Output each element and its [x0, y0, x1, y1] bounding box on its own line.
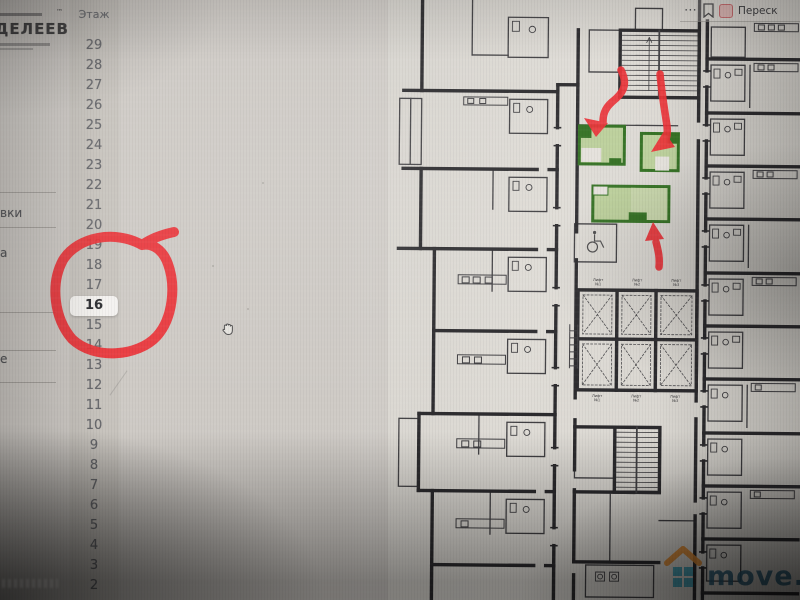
lift-label: Лифт№1 [593, 278, 603, 286]
floor-item[interactable]: 26 [70, 96, 118, 116]
floor-item[interactable]: 17 [70, 276, 118, 296]
floor-column-title: Этаж [70, 8, 118, 21]
apartment-1-notch [581, 148, 601, 162]
filter-label-truncated[interactable]: а [0, 246, 7, 260]
floor-plan[interactable]: Лифт№1Лифт№2Лифт№3 Лифт№1Лифт№2Лифт№3 [388, 0, 800, 600]
logo-tagline-blur [0, 13, 42, 16]
moveru-text: move.ru [707, 563, 800, 590]
floor-item[interactable]: 4 [70, 536, 118, 556]
floor-item[interactable]: 6 [70, 496, 118, 516]
more-button[interactable]: ⋯ [684, 4, 698, 17]
wheelchair-icon [587, 231, 603, 252]
logo-subtitle-blur [0, 43, 50, 46]
floor-item[interactable]: 5 [70, 516, 118, 536]
floor-list[interactable]: 2928272625242322212019181716151413121110… [70, 36, 118, 596]
apartment-1-tab [609, 158, 621, 164]
floor-item[interactable]: 14 [70, 336, 118, 356]
staircase-top [622, 30, 698, 98]
logo-text: ДЕЛЕЕВ [0, 20, 69, 38]
filter-divider [0, 312, 56, 313]
faint-text-smudge [2, 579, 58, 588]
dust-speck [212, 265, 214, 267]
developer-logo: ™ ДЕЛЕЕВ [0, 4, 70, 52]
filter-divider [0, 192, 56, 193]
apartment-2-notch [655, 157, 669, 171]
apartment-3-tab [629, 212, 647, 222]
floor-item[interactable]: 8 [70, 456, 118, 476]
floor-item[interactable]: 18 [70, 256, 118, 276]
browser-toolbar: ⋯ Переск [680, 0, 800, 22]
filter-divider [0, 382, 56, 383]
lift-label: Лифт№3 [670, 395, 680, 403]
filter-label-truncated[interactable]: е [0, 352, 7, 366]
floor-item[interactable]: 13 [70, 356, 118, 376]
filter-divider [0, 227, 56, 228]
floor-item[interactable]: 11 [70, 396, 118, 416]
lift-label: Лифт№2 [631, 394, 641, 402]
lift-label: Лифт№1 [592, 394, 602, 402]
lift-labels-bottom: Лифт№1Лифт№2Лифт№3 [592, 394, 680, 403]
floor-item[interactable]: 29 [70, 36, 118, 56]
apartment-2-wet-zone [667, 134, 678, 144]
screen-photo: ™ ДЕЛЕЕВ вки а е Этаж 292827262524232221… [0, 0, 800, 600]
floor-item[interactable]: 19 [70, 236, 118, 256]
floor-item[interactable]: 21 [70, 196, 118, 216]
staircase-lower [616, 427, 658, 492]
floor-item[interactable]: 3 [70, 556, 118, 576]
floor-item[interactable]: 7 [70, 476, 118, 496]
floor-item[interactable]: 15 [70, 316, 118, 336]
floor-item[interactable]: 27 [70, 76, 118, 96]
lift-label: Лифт№2 [632, 278, 642, 286]
lift-labels-top: Лифт№1Лифт№2Лифт№3 [593, 278, 681, 287]
summary-icon[interactable] [719, 4, 733, 18]
moveru-watermark: move.ru [664, 546, 800, 590]
bookmark-icon[interactable] [703, 3, 714, 18]
filter-label-truncated[interactable]: вки [0, 206, 22, 220]
floor-item[interactable]: 10 [70, 416, 118, 436]
floor-item[interactable]: 20 [70, 216, 118, 236]
dust-speck [262, 182, 264, 184]
trademark-symbol: ™ [56, 8, 63, 16]
logo-subtitle-blur2 [0, 48, 33, 50]
floor-item[interactable]: 23 [70, 156, 118, 176]
filter-divider [0, 350, 56, 351]
hand-cursor [219, 320, 236, 337]
moveru-house-icon [664, 546, 702, 590]
lift-label: Лифт№3 [671, 279, 681, 287]
floor-item[interactable]: 9 [70, 436, 118, 456]
apartment-1-wet-zone [580, 127, 591, 138]
main-walls [395, 0, 800, 600]
summary-button[interactable]: Переск [738, 5, 778, 17]
floor-item[interactable]: 22 [70, 176, 118, 196]
floor-item[interactable]: 25 [70, 116, 118, 136]
floor-item[interactable]: 28 [70, 56, 118, 76]
floor-item[interactable]: 24 [70, 136, 118, 156]
apartment-3-notch [593, 186, 608, 195]
dust-speck [247, 308, 249, 310]
floor-item[interactable]: 2 [70, 576, 118, 596]
highlighted-apartments[interactable] [579, 126, 679, 223]
floor-item-selected[interactable]: 16 [70, 296, 118, 316]
